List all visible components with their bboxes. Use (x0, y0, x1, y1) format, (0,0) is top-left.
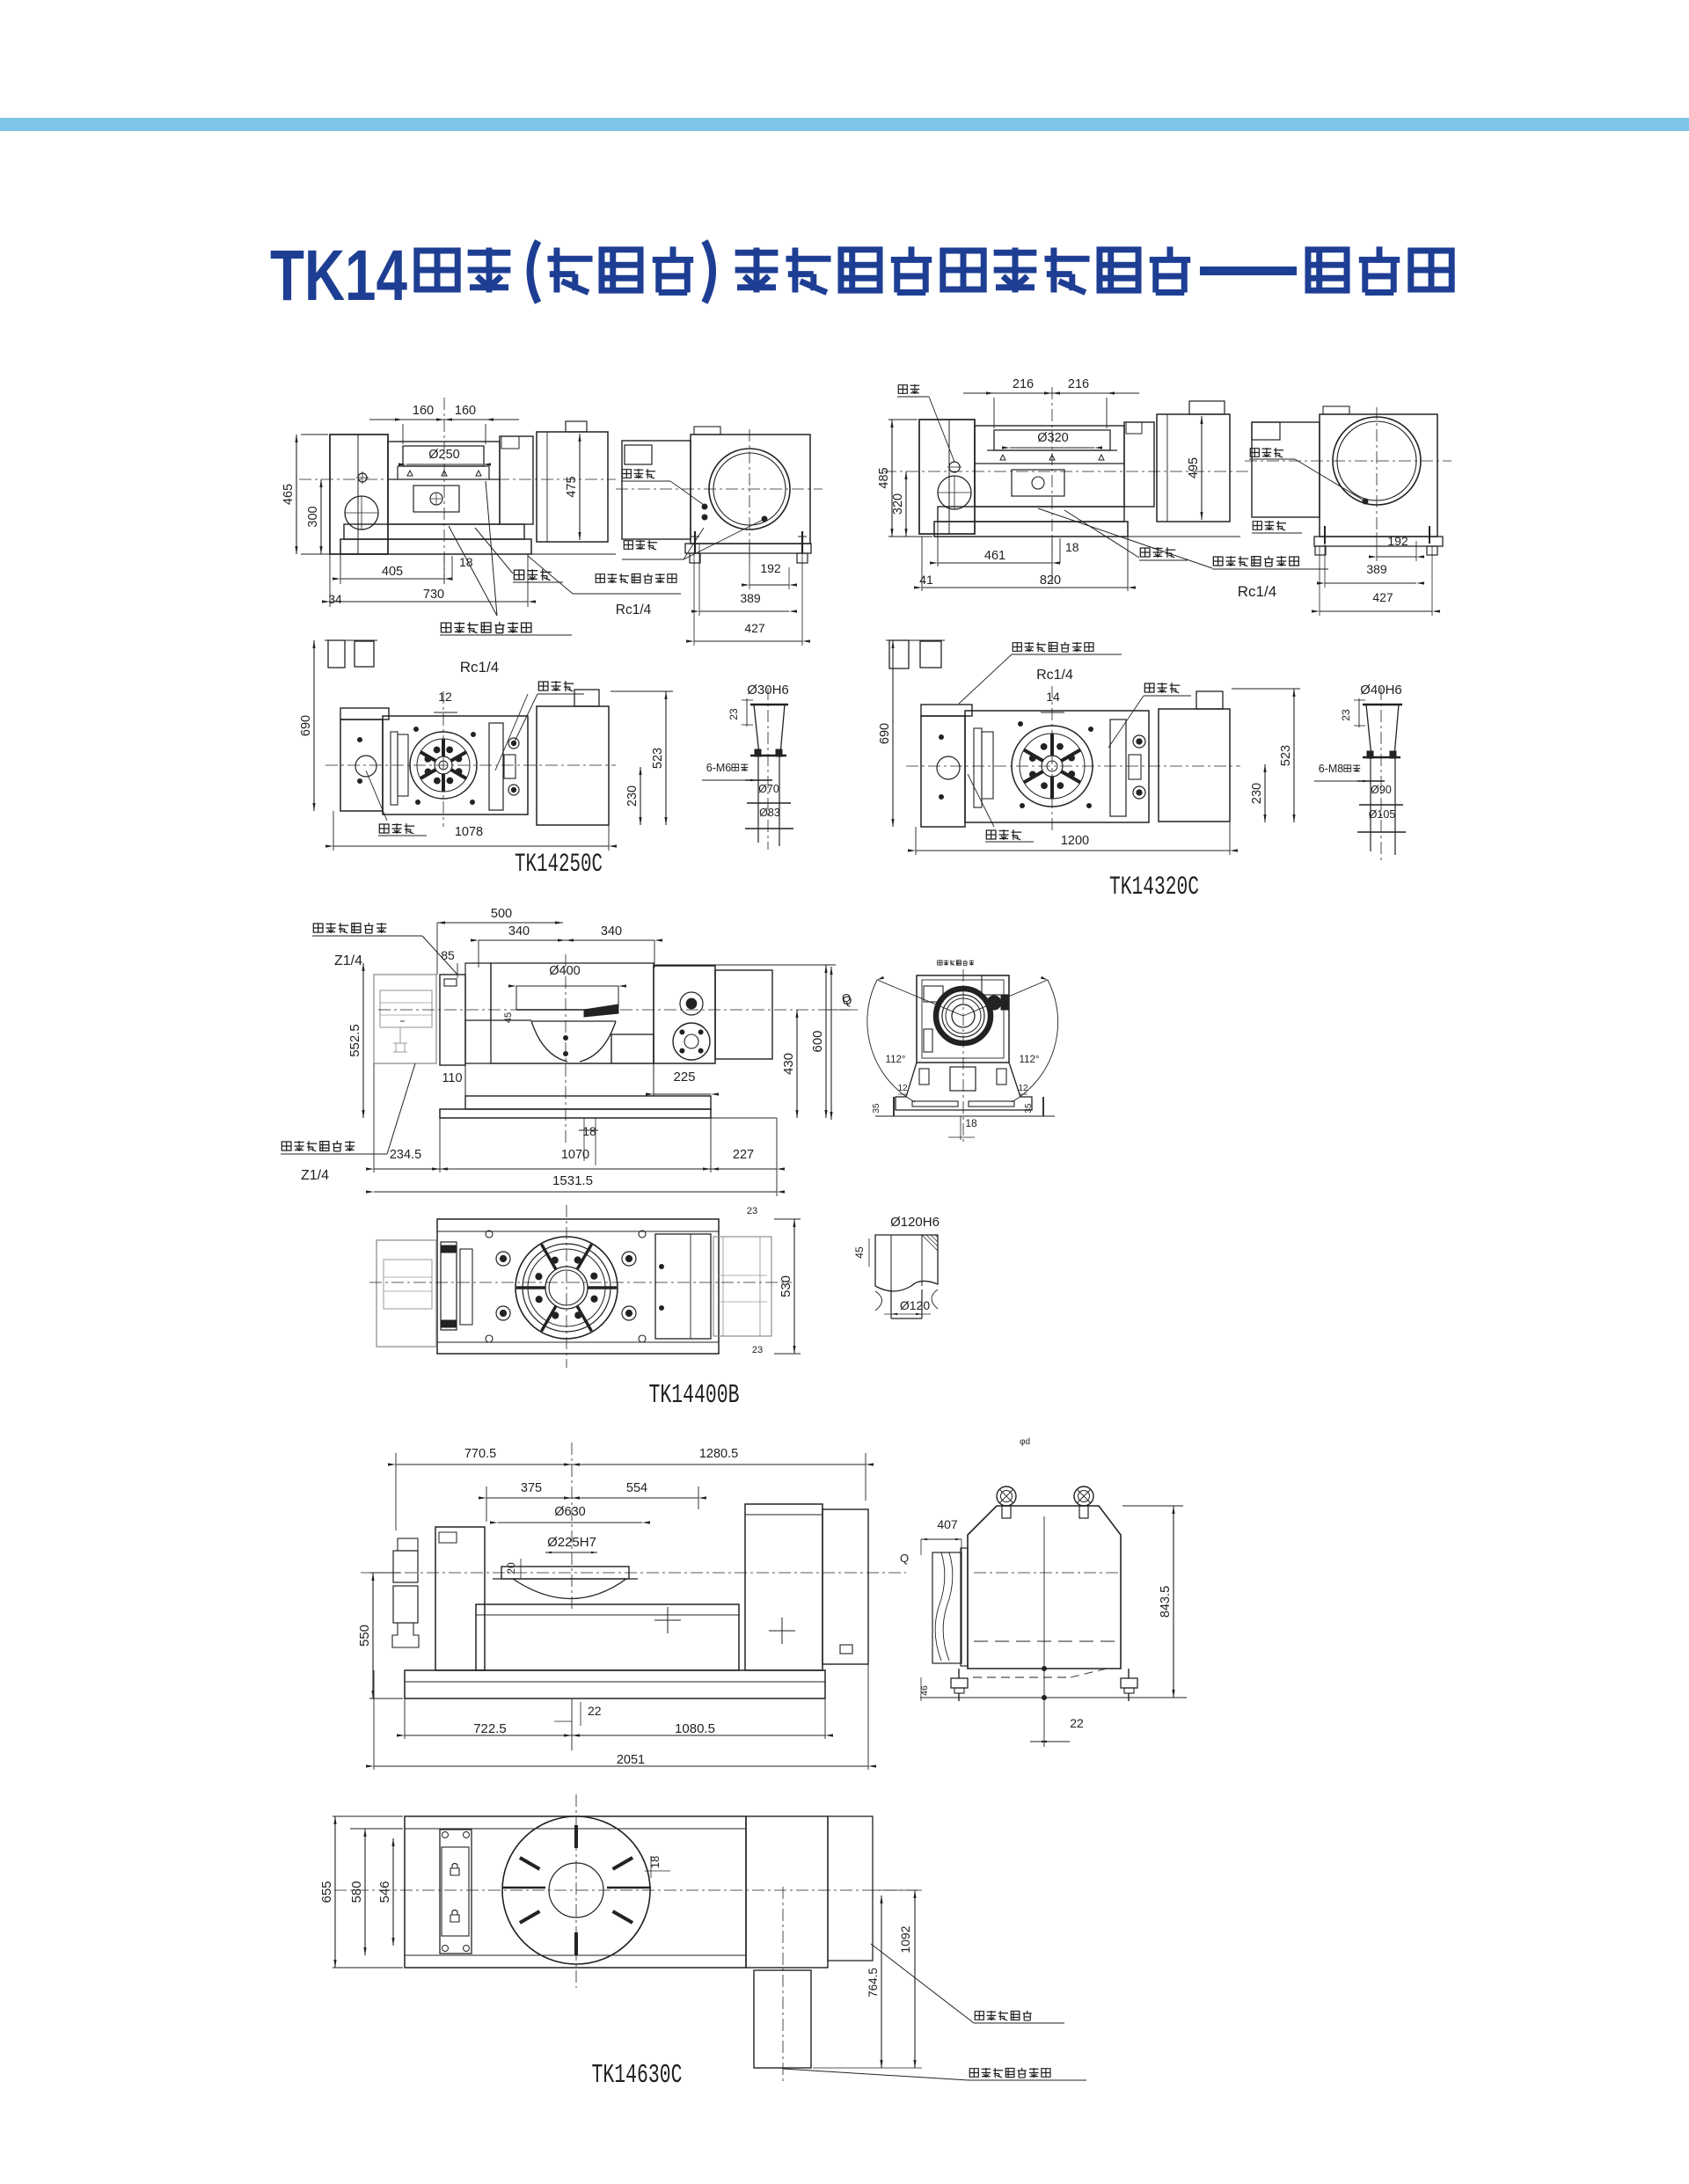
svg-text:300: 300 (306, 506, 320, 527)
svg-text:690: 690 (299, 715, 313, 736)
svg-text:1092: 1092 (898, 1925, 912, 1953)
svg-text:230: 230 (625, 785, 640, 807)
svg-text:552.5: 552.5 (347, 1024, 362, 1057)
svg-text:Rc1/4: Rc1/4 (1036, 668, 1073, 683)
svg-text:Z1/4: Z1/4 (334, 953, 362, 968)
svg-text:TK14: TK14 (270, 236, 407, 316)
svg-text:Ø83: Ø83 (759, 807, 780, 819)
svg-text:1070: 1070 (561, 1148, 589, 1162)
svg-text:550: 550 (357, 1625, 372, 1647)
svg-text:TK14630C: TK14630C (592, 2060, 683, 2091)
svg-text:110: 110 (442, 1071, 462, 1085)
svg-text:485: 485 (877, 467, 891, 488)
svg-text:Rc1/4: Rc1/4 (616, 603, 652, 617)
svg-text:230: 230 (1250, 783, 1264, 804)
svg-text:430: 430 (781, 1053, 796, 1075)
svg-text:407: 407 (937, 1517, 958, 1531)
svg-text:1280.5: 1280.5 (699, 1447, 738, 1461)
svg-text:1078: 1078 (455, 825, 483, 839)
svg-text:23: 23 (728, 708, 740, 720)
svg-text:Ø400: Ø400 (549, 964, 580, 978)
svg-text:34: 34 (328, 592, 342, 606)
svg-text:45: 45 (503, 1012, 514, 1023)
svg-text:389: 389 (1366, 562, 1387, 576)
svg-text:340: 340 (601, 924, 622, 939)
svg-text:18: 18 (648, 1856, 662, 1868)
svg-text:18: 18 (1065, 540, 1079, 554)
svg-text:22: 22 (588, 1704, 602, 1718)
svg-text:500: 500 (491, 907, 512, 921)
svg-text:85: 85 (441, 948, 455, 962)
svg-text:Ø120H6: Ø120H6 (890, 1215, 940, 1230)
svg-text:216: 216 (1068, 377, 1089, 391)
svg-text:23: 23 (747, 1206, 757, 1216)
svg-text:375: 375 (521, 1481, 542, 1495)
svg-text:TK14400B: TK14400B (649, 1380, 740, 1411)
svg-text:770.5: 770.5 (464, 1447, 496, 1461)
svg-text:320: 320 (891, 493, 905, 515)
svg-text:Q: Q (842, 991, 851, 1004)
svg-text:340: 340 (508, 924, 530, 939)
svg-text:722.5: 722.5 (473, 1721, 507, 1736)
svg-text:730: 730 (423, 588, 444, 602)
svg-text:Ø630: Ø630 (554, 1505, 585, 1519)
svg-text:6-M8: 6-M8 (1319, 763, 1344, 775)
svg-text:764.5: 764.5 (866, 1968, 880, 1998)
svg-text:41: 41 (919, 573, 933, 587)
svg-text:18: 18 (582, 1124, 596, 1138)
svg-text:405: 405 (382, 565, 403, 579)
svg-text:554: 554 (626, 1481, 647, 1495)
svg-text:580: 580 (349, 1881, 364, 1903)
svg-text:112°: 112° (886, 1055, 906, 1065)
svg-text:12: 12 (1018, 1084, 1028, 1093)
svg-text:160: 160 (413, 404, 434, 418)
svg-text:Ø105: Ø105 (1369, 808, 1396, 821)
svg-text:216: 216 (1013, 377, 1034, 391)
svg-text:523: 523 (651, 748, 665, 769)
svg-text:495: 495 (1187, 457, 1201, 478)
svg-text:14: 14 (1046, 690, 1060, 704)
svg-text:600: 600 (810, 1030, 825, 1052)
svg-text:φd: φd (1020, 1437, 1030, 1447)
svg-text:Ø250: Ø250 (428, 448, 459, 462)
svg-text:Ø120: Ø120 (900, 1298, 930, 1312)
svg-text:18: 18 (459, 555, 473, 569)
svg-text:192: 192 (760, 561, 781, 575)
svg-text:TK14250C: TK14250C (515, 850, 603, 880)
svg-text:Ø320: Ø320 (1037, 431, 1068, 445)
svg-text:389: 389 (740, 591, 761, 605)
svg-text:Z1/4: Z1/4 (301, 1168, 329, 1183)
svg-text:655: 655 (319, 1881, 334, 1903)
svg-text:225: 225 (673, 1070, 695, 1085)
svg-text:1531.5: 1531.5 (552, 1173, 593, 1188)
svg-text:530: 530 (779, 1275, 793, 1297)
svg-text:35: 35 (872, 1103, 881, 1114)
svg-text:Rc1/4: Rc1/4 (1238, 583, 1276, 600)
svg-text:12: 12 (897, 1084, 908, 1093)
svg-text:690: 690 (878, 723, 892, 744)
svg-text:227: 227 (733, 1148, 754, 1162)
svg-text:Q: Q (900, 1552, 909, 1565)
svg-text:820: 820 (1040, 573, 1061, 588)
svg-text:Rc1/4: Rc1/4 (460, 659, 499, 676)
svg-text:461: 461 (984, 549, 1005, 563)
svg-text:2051: 2051 (617, 1753, 645, 1767)
svg-text:23: 23 (1340, 709, 1352, 721)
svg-text:35: 35 (1024, 1103, 1034, 1114)
svg-text:192: 192 (1387, 534, 1408, 548)
svg-text:546: 546 (377, 1881, 392, 1903)
svg-text:843.5: 843.5 (1159, 1586, 1173, 1618)
svg-text:112°: 112° (1020, 1055, 1040, 1065)
svg-text:12: 12 (438, 690, 452, 704)
svg-text:18: 18 (965, 1117, 977, 1129)
svg-text:Ø90: Ø90 (1371, 784, 1392, 796)
svg-text:427: 427 (744, 621, 765, 635)
svg-text:6-M6: 6-M6 (706, 762, 732, 774)
svg-text:23: 23 (752, 1345, 763, 1355)
svg-text:160: 160 (455, 404, 476, 418)
svg-text:1200: 1200 (1061, 834, 1089, 848)
svg-text:22: 22 (1070, 1716, 1084, 1730)
svg-text:523: 523 (1279, 745, 1293, 766)
svg-text:1080.5: 1080.5 (675, 1721, 715, 1736)
svg-text:45: 45 (853, 1246, 866, 1259)
svg-text:427: 427 (1372, 590, 1393, 604)
svg-text:Ø70: Ø70 (758, 783, 779, 795)
svg-text:465: 465 (281, 484, 296, 505)
svg-text:234.5: 234.5 (390, 1148, 421, 1162)
svg-text:TK14320C: TK14320C (1109, 873, 1199, 902)
svg-text:475: 475 (565, 476, 579, 497)
